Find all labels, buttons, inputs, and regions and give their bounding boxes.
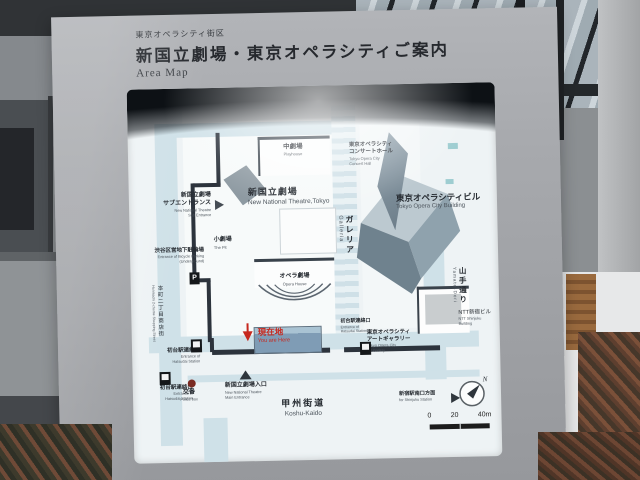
koshu-en: Koshu-Kaido [261,409,345,419]
callout-bicycle-parking: 渋谷区営地下駐輪場 Entrance of Bicycle Parking (U… [138,247,204,265]
pit-jp: 小劇場 [214,237,232,243]
shinjuku-en: for Shinjuku Station [399,397,449,403]
label-new-national-theatre: 新国立劇場 New National Theatre,Tokyo [248,186,330,208]
compass-north-label: N [483,375,488,384]
koshu-jp: 甲州街道 [281,398,325,409]
bush-foreground-left [0,424,112,480]
station-icon-window [162,374,169,380]
art-gallery-jp2: アートギャラリー [367,336,411,343]
station-icon-window [193,341,200,347]
hatsudai-jp: 初台駅連絡口 [340,318,370,325]
label-opera-city-building: 東京オペラシティビル Tokyo Opera City Building [396,191,481,212]
theatre-wall [193,183,221,188]
building-opening-inner [0,128,34,230]
callout-police-box: 交番 Police box [173,389,205,402]
label-opera-house: オペラ劇場 Opera House [263,273,325,287]
bicycle-jp: 渋谷区営地下駐輪場 [154,247,204,254]
scale-numbers: 0 20 40m [427,411,491,419]
galleria-jp: ガレリア [345,215,355,255]
label-the-pit: 小劇場 The Pit [214,237,232,250]
main-entrance-jp: 新国立劇場入口 [225,382,267,389]
sub-entrance-arrow-icon [215,200,224,210]
elevator-icon-door [362,344,369,350]
police-jp: 交番 [183,389,195,395]
yamate-jp: 山手通り [458,267,468,305]
scale-bar [430,423,490,429]
theatre-jp: 新国立劇場 [248,186,298,197]
callout-sub-entrance: 新国立劇場 サブエントランス New National Theatre Sub … [141,192,212,219]
scale-bar-tick [460,424,461,429]
station-entrance-icon [191,339,202,352]
honmachi-jp: 本町二丁目商店街 [156,285,163,337]
police-en: Police box [173,397,205,403]
elevator-entrance-icon [360,342,371,355]
callout-shinjuku-direction: 新宿駅南口方面 for Shinjuku Station [399,390,449,403]
road-stub-south [203,418,228,462]
concert-hall-jp1: 東京オペラシティ [349,141,393,148]
label-concert-hall: 東京オペラシティ コンサートホール Tokyo Opera City Conce… [349,141,412,167]
scale-0: 0 [427,412,431,419]
you-are-here-pin-icon [243,331,253,341]
hatsudai-en2: Hatsudai Station [341,329,387,335]
label-galleria: ガレリア Galleria [336,215,356,319]
parking-icon: P [189,272,199,284]
sub-entrance-jp2: サブエントランス [163,200,211,207]
shinjuku-jp: 新宿駅南口方面 [399,390,435,397]
map-panel: 中劇場 Playhouse 新国立劇場 New National Theatre… [127,82,503,464]
opera-house-jp: オペラ劇場 [279,273,309,280]
pit-en: The Pit [214,244,232,250]
concert-hall-jp2: コンサートホール [349,148,393,155]
label-playhouse: 中劇場 Playhouse [258,143,328,158]
station-entrance-icon [160,372,171,385]
scale-20: 20 [451,412,459,419]
scale-40m: 40m [478,411,492,418]
you-are-here-en: You are Here [258,337,290,345]
sidewalk-koshu-kaido [188,369,480,382]
ocb-jp: 東京オペラシティビル [396,191,481,203]
callout-hatsudai-entrance-3: 初台駅連絡口 Entrance of Hatsudai Station [340,317,386,334]
police-box-dot-icon [188,379,196,387]
sign-header: 東京オペラシティ街区 新国立劇場・東京オペラシティご案内 Area Map [135,22,516,80]
sign-board: 東京オペラシティ街区 新国立劇場・東京オペラシティご案内 Area Map [51,7,567,480]
label-koshu-kaido: 甲州街道 Koshu-Kaido [261,397,345,419]
callout-main-entrance: 新国立劇場入口 New National Theatre Main Entran… [225,381,289,400]
playhouse-jp: 中劇場 [283,143,303,150]
sub-entrance-jp1: 新国立劇場 [181,192,211,199]
road-fragment [448,143,458,149]
photo-of-area-map-sign: 東京オペラシティ街区 新国立劇場・東京オペラシティご案内 Area Map [0,0,640,480]
theatre-en: New National Theatre,Tokyo [248,197,330,207]
hatsudai-en2: Hatsudai Station [142,359,200,365]
you-are-here-label: 現在地 You are Here [258,326,291,345]
art-gallery-en2: Art Gallery [367,348,425,354]
hedge-foreground-right [538,432,640,480]
you-are-here-jp: 現在地 [258,327,284,338]
label-yamate-dori: 山手通り Yamate-Dori [451,267,468,345]
building-theatre-mid [279,207,337,254]
main-entrance-triangle-icon [239,370,251,379]
